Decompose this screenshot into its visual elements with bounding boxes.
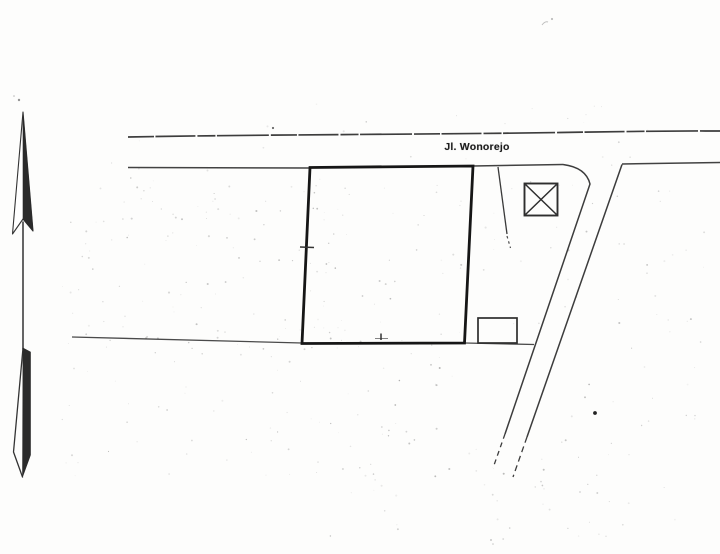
lot-divider-stub (498, 167, 511, 248)
scanned-site-sketch: Jl. Wonorejo (0, 0, 720, 554)
main-parcel-outline (300, 166, 473, 344)
road-name-label: Jl. Wonorejo (427, 141, 527, 153)
small-structure-outline (478, 318, 517, 343)
crossed-square-marker-icon (525, 184, 558, 216)
road-jl-wonorejo-lines (128, 131, 720, 168)
scan-noise-speckles (62, 103, 705, 539)
survey-tick-marks (300, 247, 388, 340)
north-arrow-icon (13, 99, 34, 477)
site-plan-drawing (0, 0, 720, 554)
